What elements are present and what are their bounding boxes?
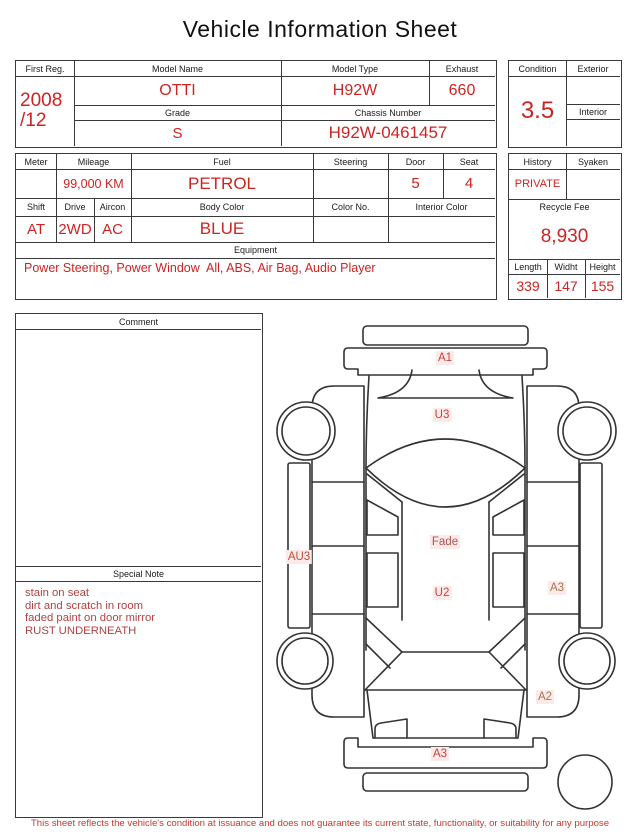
recycle-fee-value: 8,930: [509, 214, 620, 259]
shift-label: Shift: [16, 198, 56, 216]
width-label: Widht: [547, 259, 585, 274]
comment-value: [16, 330, 261, 566]
interior-label: Interior: [566, 104, 620, 119]
fuel-label: Fuel: [131, 154, 313, 169]
exhaust-label: Exhaust: [429, 61, 495, 76]
special-note-label: Special Note: [16, 566, 261, 581]
interior-value: [566, 119, 620, 146]
diagram-label-a1-front-bumper: A1: [436, 351, 454, 365]
condition-panel: Condition 3.5 Exterior Interior: [508, 60, 622, 148]
aircon-value: AC: [94, 216, 131, 242]
history-label: History: [509, 154, 566, 169]
door-value: 5: [388, 169, 443, 198]
history-panel: History PRIVATE Syaken Recycle Fee 8,930…: [508, 153, 622, 300]
comment-note-panel: Comment Special Note stain on seat dirt …: [15, 313, 263, 818]
diagram-label-a3-rear-bumper: A3: [431, 747, 449, 761]
condition-label: Condition: [509, 61, 566, 76]
comment-label: Comment: [16, 314, 261, 329]
interior-color-value: [388, 216, 495, 242]
body-color-value: BLUE: [131, 216, 313, 242]
equipment-value: Power Steering, Power Window All, ABS, A…: [16, 258, 495, 298]
seat-label: Seat: [443, 154, 495, 169]
car-outline-drawing: [268, 312, 638, 817]
color-no-value: [313, 216, 388, 242]
steering-label: Steering: [313, 154, 388, 169]
diagram-label-au3-left-sill: AU3: [286, 550, 312, 564]
drive-value: 2WD: [56, 216, 94, 242]
special-note-line: dirt and scratch in room: [25, 600, 255, 613]
syaken-label: Syaken: [566, 154, 620, 169]
model-name-value: OTTI: [74, 76, 281, 105]
diagram-label-u2-rear: U2: [433, 586, 452, 600]
disclaimer-text: This sheet reflects the vehicle's condit…: [0, 818, 640, 829]
length-value: 339: [509, 274, 547, 298]
equipment-label: Equipment: [16, 242, 495, 258]
model-name-label: Model Name: [74, 61, 281, 76]
special-note-list: stain on seat dirt and scratch in room f…: [25, 587, 255, 637]
diagram-label-a3-right-door: A3: [548, 581, 566, 595]
height-value: 155: [585, 274, 620, 298]
length-label: Length: [509, 259, 547, 274]
special-note-line: stain on seat: [25, 587, 255, 600]
divider: [16, 581, 261, 582]
exhaust-value: 660: [429, 76, 495, 105]
model-type-value: H92W: [281, 76, 429, 105]
vehicle-information-sheet: Vehicle Information Sheet First Reg. 200…: [0, 0, 640, 835]
diagram-label-fade-roof: Fade: [430, 535, 460, 549]
grade-value: S: [74, 120, 281, 146]
interior-color-label: Interior Color: [388, 198, 495, 216]
mileage-value: 99,000 KM: [56, 169, 131, 198]
seat-value: 4: [443, 169, 495, 198]
chassis-number-value: H92W-0461457: [281, 120, 495, 146]
info-table: First Reg. 2008 /12 Model Name OTTI Mode…: [15, 60, 497, 148]
spec-table: Meter Mileage 99,000 KM Fuel PETROL Stee…: [15, 153, 497, 300]
condition-value: 3.5: [509, 76, 566, 146]
width-value: 147: [547, 274, 585, 298]
grade-label: Grade: [74, 105, 281, 120]
door-label: Door: [388, 154, 443, 169]
body-color-label: Body Color: [131, 198, 313, 216]
page-title: Vehicle Information Sheet: [0, 16, 640, 43]
model-type-label: Model Type: [281, 61, 429, 76]
first-reg-value: 2008 /12: [16, 76, 74, 146]
special-note-line: faded paint on door mirror: [25, 612, 255, 625]
steering-value: [313, 169, 388, 198]
mileage-label: Mileage: [56, 154, 131, 169]
recycle-fee-label: Recycle Fee: [509, 199, 620, 214]
fuel-value: PETROL: [131, 169, 313, 198]
exterior-label: Exterior: [566, 61, 620, 76]
drive-label: Drive: [56, 198, 94, 216]
height-label: Height: [585, 259, 620, 274]
special-note-line: RUST UNDERNEATH: [25, 625, 255, 638]
exterior-value: [566, 76, 620, 104]
shift-value: AT: [16, 216, 56, 242]
meter-label: Meter: [16, 154, 56, 169]
first-reg-label: First Reg.: [16, 61, 74, 76]
history-value: PRIVATE: [509, 169, 566, 199]
diagram-label-a2-right-fender: A2: [536, 690, 554, 704]
chassis-number-label: Chassis Number: [281, 105, 495, 120]
color-no-label: Color No.: [313, 198, 388, 216]
car-diagram: A1 U3 Fade AU3 U2 A3 A2 A3: [268, 312, 638, 817]
diagram-label-u3-hood: U3: [433, 408, 452, 422]
syaken-value: [566, 169, 620, 199]
aircon-label: Aircon: [94, 198, 131, 216]
meter-value: [16, 169, 56, 198]
